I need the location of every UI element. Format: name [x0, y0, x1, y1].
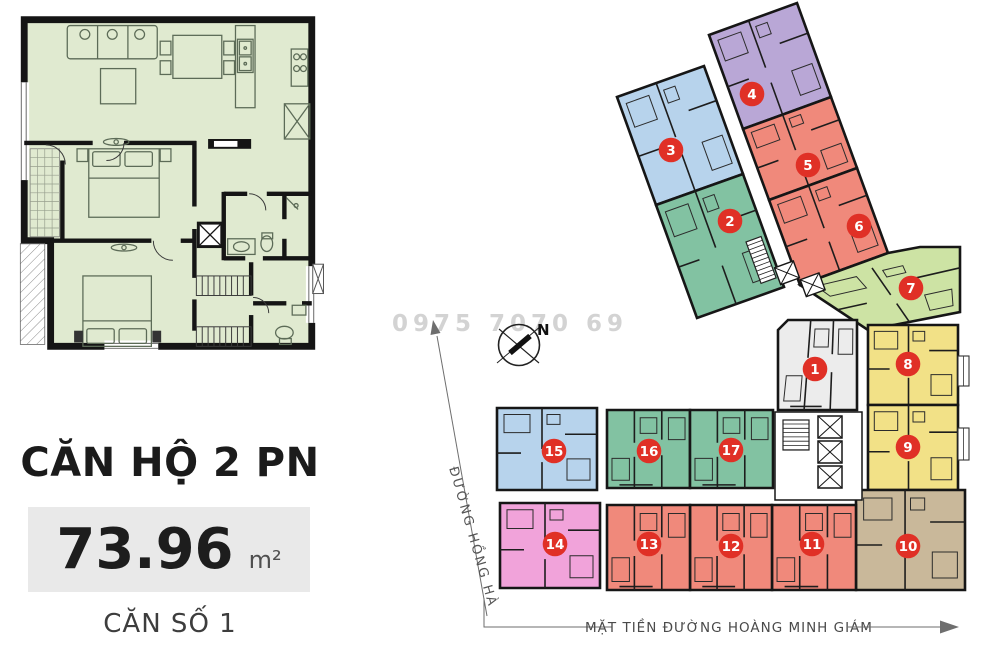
svg-text:7: 7	[906, 281, 915, 297]
svg-text:8: 8	[903, 357, 912, 373]
unit-badge-10: 10	[896, 534, 921, 559]
unit-badge-15: 15	[542, 439, 567, 464]
street-left-label: ĐƯỜNG HỒNG HÀ	[445, 464, 501, 609]
unit-badge-17: 17	[719, 438, 744, 463]
unit-badge-6: 6	[847, 214, 872, 239]
unit-badge-13: 13	[637, 532, 662, 557]
svg-text:14: 14	[546, 537, 565, 553]
svg-text:11: 11	[803, 537, 822, 553]
unit-badge-8: 8	[896, 352, 921, 377]
svg-text:15: 15	[545, 444, 564, 460]
unit-badge-9: 9	[896, 435, 921, 460]
unit-badge-1: 1	[803, 357, 828, 382]
svg-text:1: 1	[810, 362, 819, 378]
svg-text:4: 4	[747, 87, 756, 103]
unit-badge-3: 3	[659, 138, 684, 163]
unit-badge-2: 2	[718, 209, 743, 234]
compass-icon: N	[497, 321, 550, 366]
svg-text:5: 5	[803, 158, 812, 174]
svg-text:6: 6	[854, 219, 863, 235]
svg-text:12: 12	[722, 539, 741, 555]
unit-badge-12: 12	[719, 534, 744, 559]
svg-text:10: 10	[899, 539, 918, 555]
unit-badge-7: 7	[899, 276, 924, 301]
site-plan: 3425678910111213141516171NĐƯỜNG HỒNG HÀM…	[0, 0, 1000, 655]
svg-text:N: N	[537, 321, 550, 339]
street-bottom-label: MẶT TIỀN ĐƯỜNG HOÀNG MINH GIÁM	[585, 617, 873, 636]
svg-text:17: 17	[722, 443, 741, 459]
unit-badge-5: 5	[796, 153, 821, 178]
unit-badge-4: 4	[740, 82, 765, 107]
unit-badge-11: 11	[800, 532, 825, 557]
svg-text:9: 9	[903, 440, 912, 456]
unit-badge-14: 14	[543, 532, 568, 557]
unit-badge-16: 16	[637, 439, 662, 464]
svg-text:3: 3	[666, 143, 675, 159]
svg-text:16: 16	[640, 444, 659, 460]
svg-text:13: 13	[640, 537, 659, 553]
svg-text:2: 2	[725, 214, 734, 230]
street-arrow-bottom: MẶT TIỀN ĐƯỜNG HOÀNG MINH GIÁM	[484, 598, 959, 636]
elevator-core	[775, 412, 862, 500]
street-arrow-left: ĐƯỜNG HỒNG HÀ	[431, 320, 502, 616]
